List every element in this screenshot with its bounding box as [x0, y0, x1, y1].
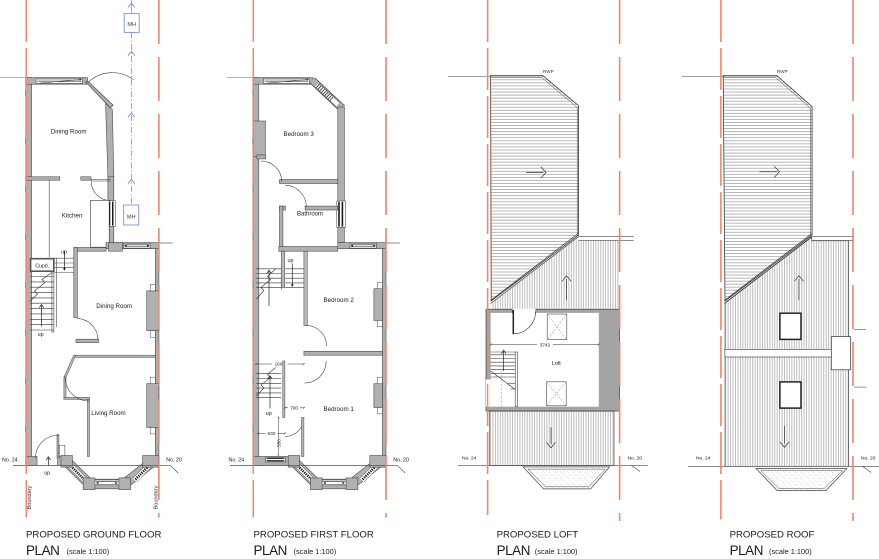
- svg-text:MH: MH: [127, 22, 136, 28]
- svg-text:(scale 1:100): (scale 1:100): [769, 547, 812, 556]
- svg-text:No. 20: No. 20: [166, 457, 182, 463]
- svg-text:No. 24: No. 24: [696, 456, 711, 462]
- svg-text:PROPOSED FIRST FLOOR: PROPOSED FIRST FLOOR: [254, 530, 374, 541]
- svg-text:up: up: [288, 258, 294, 264]
- svg-text:(scale 1:100): (scale 1:100): [67, 547, 110, 556]
- svg-text:RWP: RWP: [543, 69, 554, 74]
- svg-text:No. 20: No. 20: [628, 456, 643, 462]
- svg-text:PLAN: PLAN: [730, 543, 763, 558]
- svg-text:MH: MH: [127, 215, 136, 221]
- svg-text:PLAN: PLAN: [254, 543, 287, 558]
- svg-text:RWP: RWP: [777, 69, 788, 74]
- svg-text:Bedroom 1: Bedroom 1: [324, 406, 355, 413]
- svg-text:PLAN: PLAN: [26, 543, 59, 558]
- svg-text:Bathroom: Bathroom: [297, 212, 323, 218]
- svg-text:No. 24: No. 24: [2, 457, 18, 463]
- svg-text:Dining Room: Dining Room: [51, 129, 87, 136]
- svg-text:Living Room: Living Room: [91, 410, 125, 417]
- svg-text:up: up: [266, 411, 272, 417]
- svg-text:PROPOSED LOFT: PROPOSED LOFT: [497, 530, 579, 541]
- svg-text:Bedroom 2: Bedroom 2: [324, 297, 355, 304]
- svg-text:No. 24: No. 24: [229, 457, 245, 463]
- svg-text:PROPOSED ROOF: PROPOSED ROOF: [730, 530, 815, 541]
- svg-text:up: up: [44, 471, 50, 477]
- svg-text:PROPOSED GROUND FLOOR: PROPOSED GROUND FLOOR: [26, 530, 161, 541]
- svg-text:up: up: [61, 250, 67, 256]
- svg-text:700: 700: [290, 406, 298, 411]
- svg-text:up: up: [38, 332, 44, 338]
- svg-text:Dining Room: Dining Room: [96, 303, 132, 310]
- svg-text:No. 24: No. 24: [462, 456, 477, 462]
- svg-text:Boundary: Boundary: [27, 485, 33, 509]
- svg-text:PLAN: PLAN: [497, 543, 530, 558]
- svg-text:No. 20: No. 20: [393, 457, 409, 463]
- svg-text:Cupd.: Cupd.: [35, 264, 49, 270]
- svg-text:3742: 3742: [540, 342, 551, 347]
- svg-text:No. 20: No. 20: [861, 456, 876, 462]
- svg-text:Loft: Loft: [552, 361, 561, 367]
- svg-text:630: 630: [268, 431, 276, 436]
- svg-text:(scale 1:100): (scale 1:100): [294, 547, 337, 556]
- svg-text:550: 550: [277, 439, 282, 447]
- svg-text:Kitchen: Kitchen: [62, 212, 83, 219]
- svg-text:(scale 1:100): (scale 1:100): [535, 547, 578, 556]
- svg-text:Bedroom 3: Bedroom 3: [284, 131, 315, 138]
